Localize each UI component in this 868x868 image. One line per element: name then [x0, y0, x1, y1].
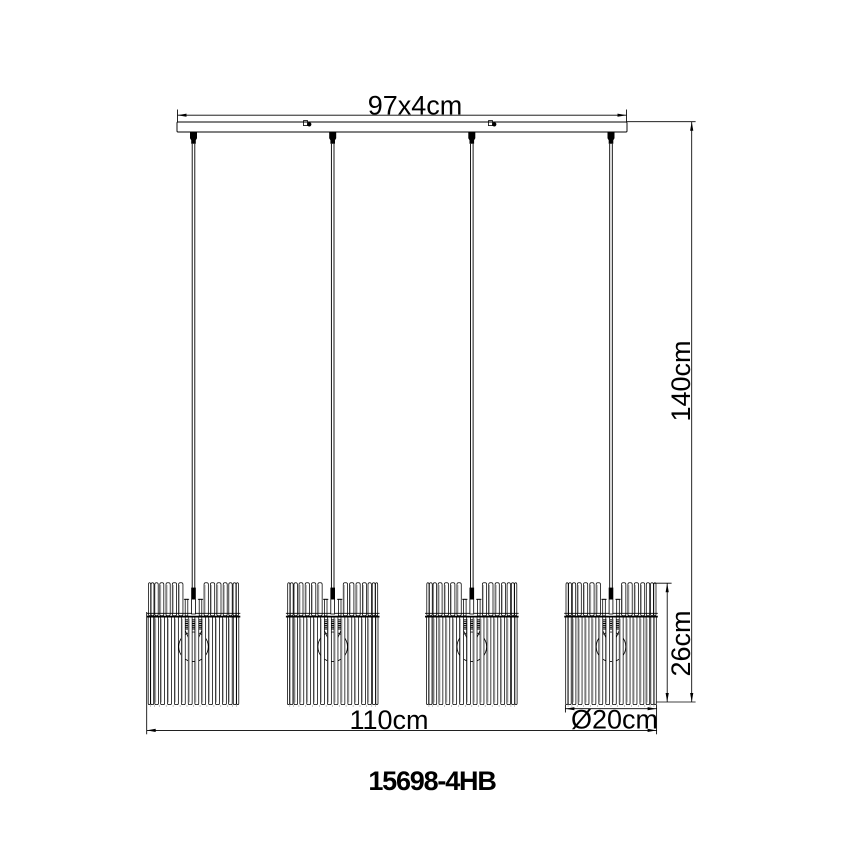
- svg-text:Ø20cm: Ø20cm: [571, 704, 658, 734]
- svg-text:15698-4HB: 15698-4HB: [368, 766, 496, 796]
- svg-text:140cm: 140cm: [666, 340, 696, 421]
- svg-text:97x4cm: 97x4cm: [368, 90, 463, 120]
- svg-text:110cm: 110cm: [349, 705, 428, 735]
- svg-text:26cm: 26cm: [666, 610, 696, 676]
